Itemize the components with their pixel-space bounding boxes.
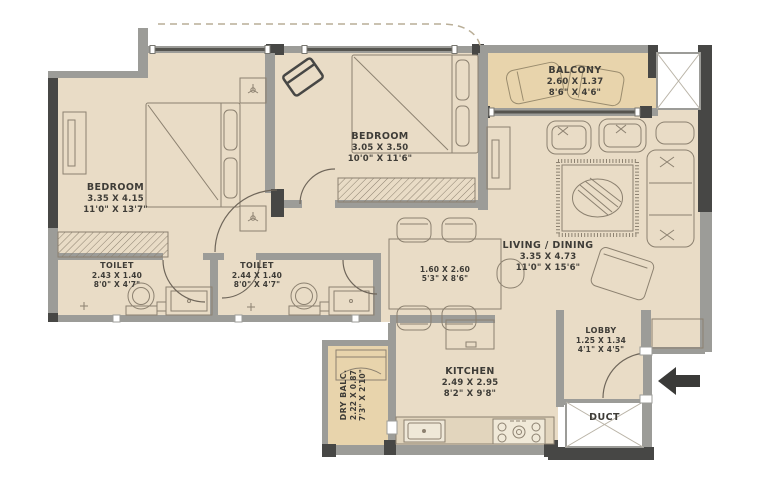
- armchair-icon: [547, 121, 591, 154]
- room-label-balcony: BALCONY 2.60 X 1.37 8'6" X 4'6": [505, 65, 645, 98]
- drain-icon: [80, 302, 88, 310]
- tv-unit-icon: [487, 127, 510, 189]
- chair-icon: [282, 57, 324, 96]
- nightstand-icon: [240, 78, 266, 103]
- room-label-toilet1: TOILET 2.43 X 1.40 8'0" X 4'7": [58, 261, 176, 290]
- door-leaf: [271, 189, 284, 217]
- shower-icon: [166, 287, 212, 315]
- wardrobe-hatch: [338, 178, 475, 202]
- nightstand-icon: [240, 206, 266, 231]
- room-label-duct: DUCT: [566, 412, 643, 424]
- wardrobe-icon: [63, 112, 86, 174]
- room-label-kitchen: KITCHEN 2.49 X 2.95 8'2" X 9'8": [395, 366, 545, 399]
- dining-chair-icon: [442, 306, 476, 330]
- sink-icon: [404, 420, 445, 442]
- drain-icon: [247, 303, 255, 311]
- side-table-icon: [656, 122, 694, 144]
- rug-icon: [558, 161, 637, 235]
- counter-icon: [652, 319, 703, 348]
- armchair-icon: [599, 119, 646, 152]
- entrance-arrow-icon: [658, 367, 700, 395]
- duct-shaft-icon: [566, 402, 643, 447]
- eave-dashed-line: [158, 24, 481, 50]
- label-dining-table: 1.60 X 2.60 5'3" X 8'6": [390, 265, 500, 284]
- dining-chair-icon: [397, 306, 431, 330]
- sofa-icon: [647, 150, 694, 247]
- dining-chair-icon: [442, 218, 476, 242]
- wardrobe-hatch: [58, 232, 168, 257]
- room-label-bedroom1: BEDROOM 3.35 X 4.15 11'0" X 13'7": [43, 182, 188, 215]
- stove-icon: [493, 419, 545, 444]
- duct-shaft-icon: [657, 53, 700, 109]
- shower-icon: [329, 287, 374, 315]
- room-label-dry-balcony: DRY BALC. 2.22 X 0.87 7'3" X 2'10": [339, 343, 381, 447]
- dining-chair-icon: [397, 218, 431, 242]
- plan-drawing-layer: [0, 0, 769, 499]
- room-label-lobby: LOBBY 1.25 X 1.34 4'1" X 4'5": [549, 326, 653, 355]
- floor-plan: BEDROOM 3.35 X 4.15 11'0" X 13'7" BEDROO…: [0, 0, 769, 499]
- room-label-toilet2: TOILET 2.44 X 1.40 8'0" X 4'7": [198, 261, 316, 290]
- room-label-bedroom2: BEDROOM 3.05 X 3.50 10'0" X 11'6": [310, 131, 450, 164]
